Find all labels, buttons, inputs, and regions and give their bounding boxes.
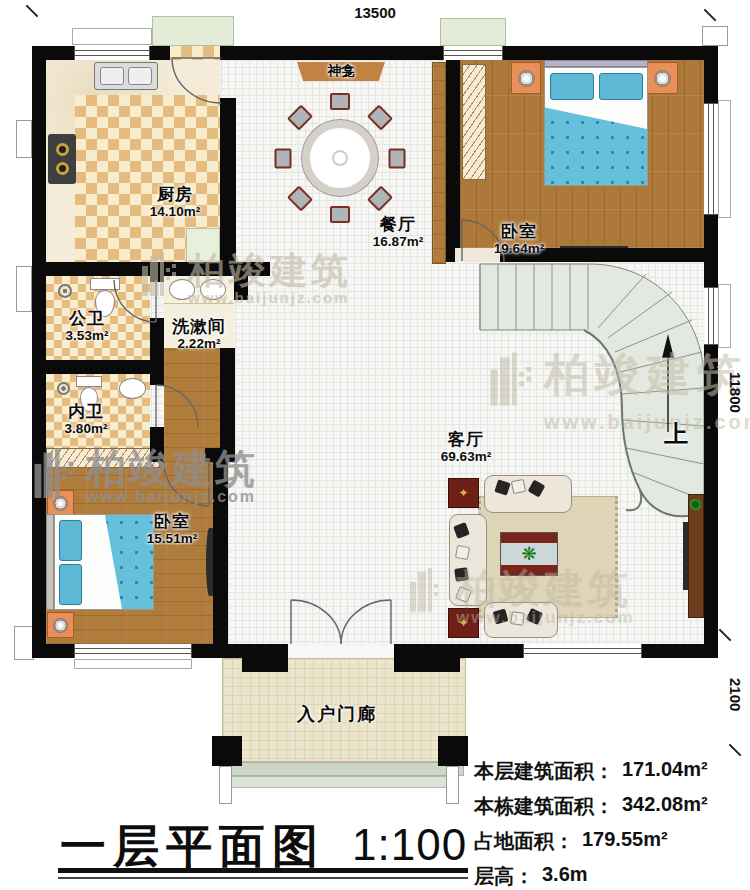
porch-step-1 <box>224 762 464 776</box>
nightstand <box>511 62 541 94</box>
wall <box>213 462 228 644</box>
dining-chair <box>330 206 350 223</box>
cushion <box>511 479 526 494</box>
exterior-pier <box>16 266 32 312</box>
dining-table <box>302 120 378 196</box>
plant-icon: ❋ <box>501 543 557 565</box>
tv <box>683 522 688 590</box>
dimension-tick <box>704 9 717 22</box>
wall <box>220 348 235 462</box>
stairs-up-label: 上 <box>664 418 688 450</box>
pillow <box>599 73 643 100</box>
exterior-pier <box>16 120 32 158</box>
side-table: ✦ <box>448 478 479 508</box>
porch-step-2 <box>230 776 458 788</box>
stove <box>48 134 76 184</box>
wall <box>394 658 460 672</box>
coffee-table: ❋ <box>500 532 558 576</box>
entrance-door-opening <box>288 644 394 658</box>
window-sill <box>72 28 152 45</box>
wall <box>150 427 164 462</box>
room-label-washroom: 洗漱间2.22m² <box>172 318 226 351</box>
dining-chair <box>389 149 406 169</box>
planter-box <box>152 16 234 46</box>
porch-post <box>446 766 459 804</box>
side-table: ✦ <box>448 608 479 638</box>
dimension-right: 11800 <box>727 372 744 413</box>
tv-cabinet <box>688 494 704 618</box>
window-sill <box>718 100 731 218</box>
porch-column <box>212 736 242 766</box>
wall <box>446 248 455 262</box>
window <box>74 644 192 658</box>
wall <box>205 448 228 462</box>
room-label-bedroom-left: 卧室15.51m² <box>147 513 197 546</box>
wash-basin <box>200 279 226 300</box>
dining-cabinet <box>432 62 446 264</box>
porch-column <box>438 736 468 766</box>
kitchen-backdoor-threshold <box>170 46 220 60</box>
cushion <box>510 611 525 626</box>
exterior-pier <box>14 626 34 660</box>
stat-row: 占地面积：179.55m² <box>474 828 750 855</box>
drawing-scale: 1:100 <box>352 820 467 870</box>
hallway-floor <box>164 348 220 462</box>
cushion <box>454 567 469 582</box>
refrigerator <box>186 228 220 264</box>
wall <box>446 60 460 248</box>
toilet-tank <box>90 278 120 290</box>
wardrobe <box>46 448 160 468</box>
window <box>443 46 503 60</box>
window <box>74 46 150 60</box>
dining-chair <box>330 93 350 110</box>
bedroom-left-door-opening <box>160 448 205 462</box>
planter-box <box>440 18 506 46</box>
bed-headboard <box>46 514 54 610</box>
bed-headboard <box>544 60 648 67</box>
wash-basin <box>169 279 195 300</box>
stat-row: 本栋建筑面积：342.08m² <box>474 793 750 820</box>
porch-post <box>219 766 232 804</box>
shower-head-icon <box>58 284 72 298</box>
dimension-tick <box>719 629 732 642</box>
pillow <box>59 520 82 561</box>
area-stats: 本层建筑面积：171.04m² 本栋建筑面积：342.08m² 占地面积：179… <box>474 758 750 890</box>
dining-chair <box>275 149 292 169</box>
room-label-porch: 入户门廊 <box>297 702 377 726</box>
title-underline-thin <box>58 877 468 879</box>
room-label-private-bath: 内卫3.80m² <box>65 403 108 436</box>
wall <box>32 360 164 374</box>
window <box>523 644 642 658</box>
window <box>704 103 718 215</box>
room-label-shrine: 神龛 <box>328 62 355 80</box>
kitchen-sink <box>94 62 158 90</box>
window-sill <box>718 284 731 348</box>
wall <box>150 276 164 282</box>
pillow <box>550 73 594 100</box>
window <box>704 287 718 345</box>
room-label-kitchen: 厨房14.10m² <box>150 186 200 219</box>
title-underline <box>58 868 468 873</box>
room-label-public-bath: 公卫3.53m² <box>66 310 109 343</box>
nightstand <box>646 62 678 94</box>
cushion <box>455 545 470 560</box>
toilet-tank <box>76 376 102 387</box>
wall <box>32 46 46 658</box>
room-label-bedroom-top: 卧室19.64m² <box>494 223 544 256</box>
room-label-living: 客厅69.63m² <box>441 431 491 464</box>
dimension-tick <box>26 5 39 18</box>
pillow <box>59 564 82 605</box>
exterior-pier <box>702 26 728 46</box>
floor-plan-page: ✦ ✦ ❋ <box>0 0 750 890</box>
dimension-bottom-right: 2100 <box>727 678 744 711</box>
wash-basin <box>119 378 146 399</box>
wall <box>150 318 164 360</box>
dimension-tick <box>729 744 742 757</box>
nightstand <box>47 612 74 638</box>
wardrobe <box>462 64 486 180</box>
room-label-dining: 餐厅16.87m² <box>373 216 423 249</box>
plant-icon <box>690 499 701 510</box>
window-sill <box>74 659 192 669</box>
wall <box>242 658 288 672</box>
stat-row: 本层建筑面积：171.04m² <box>474 758 750 785</box>
stat-row: 层高：3.6m <box>474 863 750 890</box>
nightstand <box>47 490 74 516</box>
wall <box>150 374 164 385</box>
shower-head-icon <box>57 382 70 395</box>
wall <box>220 98 236 266</box>
dimension-top: 13500 <box>345 4 405 21</box>
wall <box>234 262 248 300</box>
